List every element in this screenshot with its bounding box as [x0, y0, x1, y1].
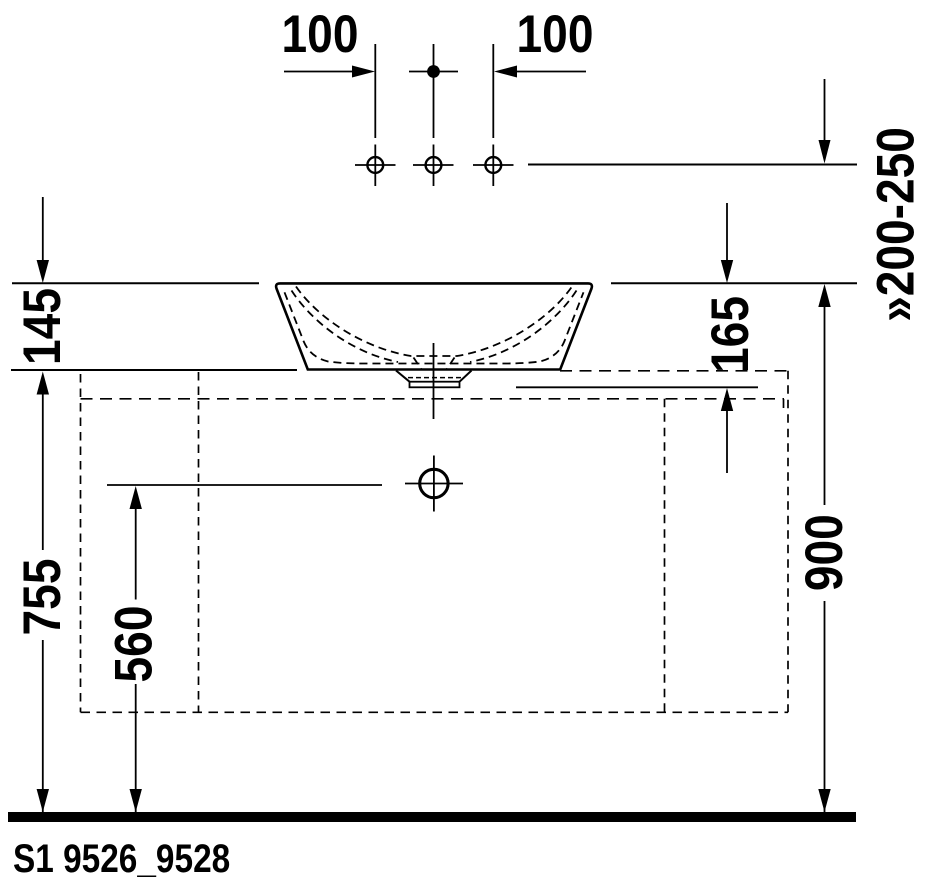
svg-text:145: 145 — [12, 288, 72, 365]
svg-text:560: 560 — [104, 606, 164, 683]
svg-text:100: 100 — [517, 4, 594, 64]
svg-text:100: 100 — [282, 4, 359, 64]
svg-text:755: 755 — [12, 559, 72, 636]
svg-text:165: 165 — [700, 296, 760, 373]
svg-text:S1 9526_9528: S1 9526_9528 — [13, 836, 230, 881]
svg-text:»200-250: »200-250 — [865, 127, 925, 322]
svg-text:900: 900 — [794, 514, 854, 591]
